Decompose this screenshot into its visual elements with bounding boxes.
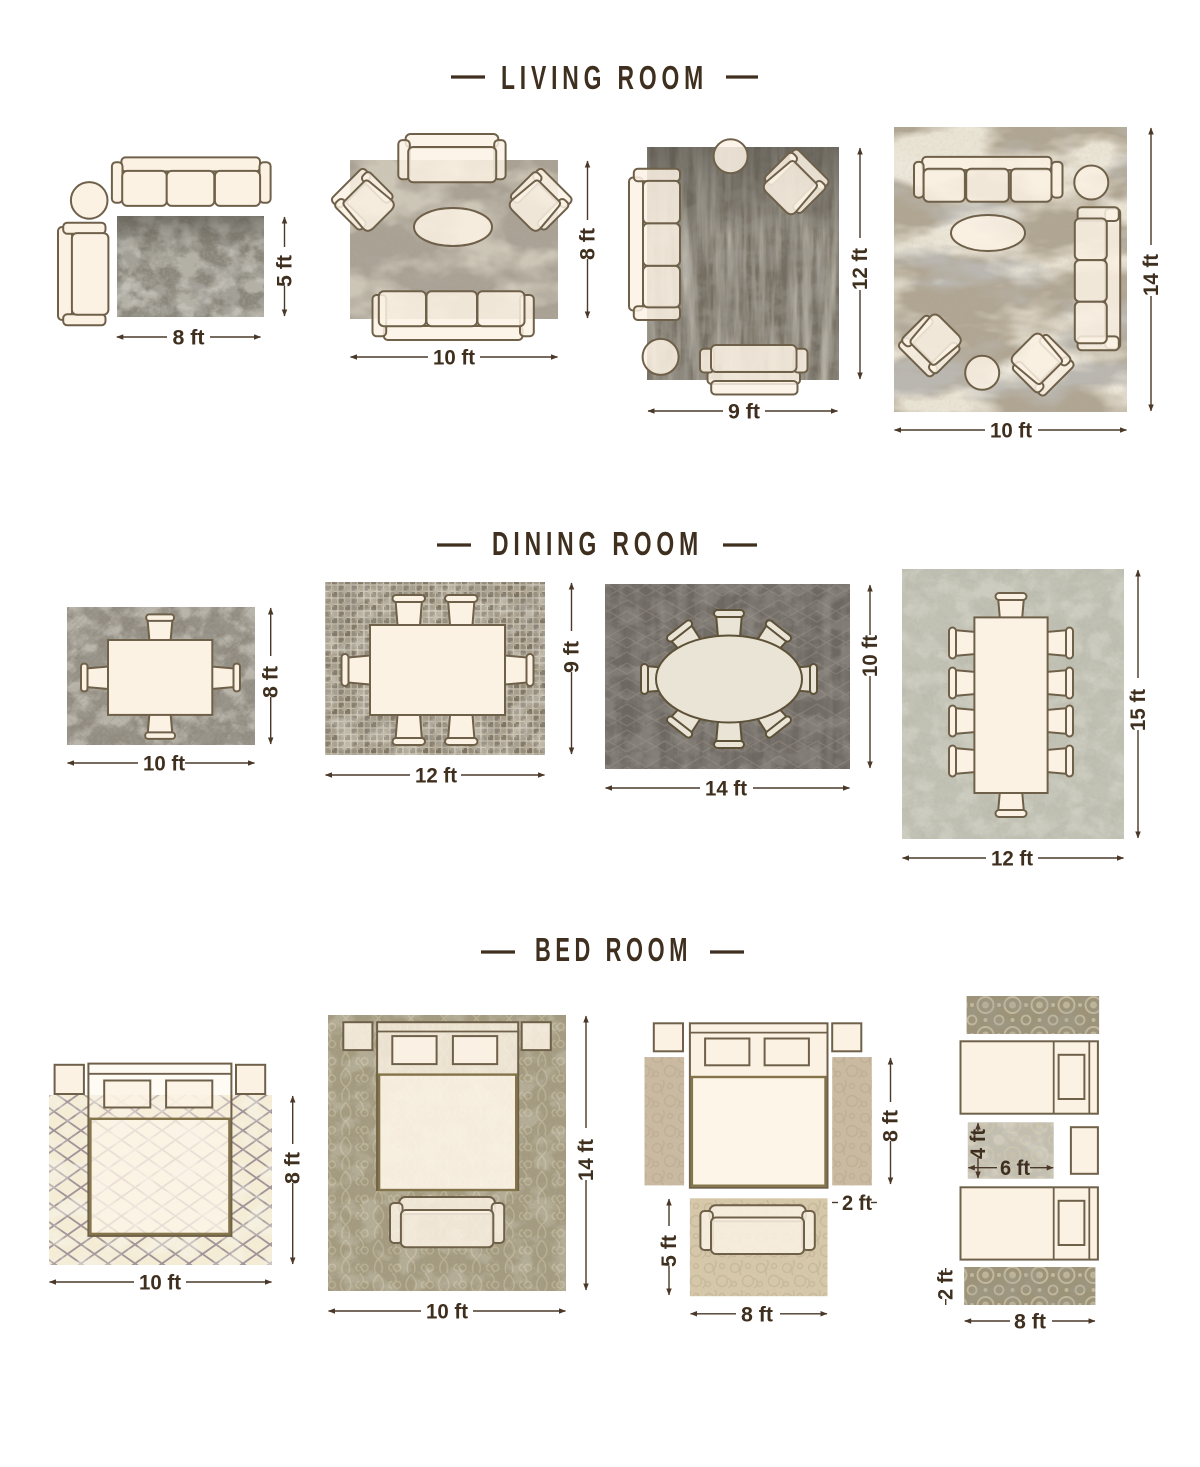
- svg-text:12 ft: 12 ft: [415, 765, 457, 788]
- svg-text:DINING ROOM: DINING ROOM: [492, 525, 703, 562]
- svg-text:2 ft: 2 ft: [842, 1192, 872, 1215]
- svg-text:10 ft: 10 ft: [139, 1272, 181, 1295]
- svg-text:10 ft: 10 ft: [143, 753, 185, 776]
- svg-text:10 ft: 10 ft: [990, 420, 1032, 443]
- svg-text:6 ft: 6 ft: [1000, 1157, 1030, 1180]
- svg-text:12 ft: 12 ft: [849, 248, 872, 290]
- svg-text:8 ft: 8 ft: [260, 666, 283, 698]
- svg-text:BED ROOM: BED ROOM: [535, 931, 692, 968]
- svg-text:8 ft: 8 ft: [282, 1152, 305, 1184]
- svg-text:2 ft: 2 ft: [935, 1270, 958, 1300]
- svg-text:8 ft: 8 ft: [880, 1110, 903, 1142]
- svg-text:10 ft: 10 ft: [433, 347, 475, 370]
- svg-text:10 ft: 10 ft: [859, 635, 882, 677]
- svg-text:4 ft: 4 ft: [967, 1129, 990, 1159]
- svg-text:14 ft: 14 ft: [705, 778, 747, 801]
- svg-text:8 ft: 8 ft: [1014, 1311, 1046, 1334]
- svg-text:8 ft: 8 ft: [741, 1303, 773, 1326]
- svg-text:8 ft: 8 ft: [577, 228, 600, 260]
- svg-text:LIVING ROOM: LIVING ROOM: [501, 59, 708, 96]
- svg-text:9 ft: 9 ft: [728, 401, 760, 424]
- svg-text:10 ft: 10 ft: [426, 1301, 468, 1324]
- svg-text:5 ft: 5 ft: [274, 255, 297, 287]
- svg-text:14 ft: 14 ft: [575, 1139, 598, 1181]
- svg-text:12 ft: 12 ft: [991, 848, 1033, 871]
- svg-text:14 ft: 14 ft: [1140, 254, 1163, 296]
- svg-text:9 ft: 9 ft: [561, 641, 584, 673]
- svg-text:5 ft: 5 ft: [658, 1235, 681, 1267]
- svg-text:15 ft: 15 ft: [1127, 689, 1150, 731]
- svg-text:8 ft: 8 ft: [173, 327, 205, 350]
